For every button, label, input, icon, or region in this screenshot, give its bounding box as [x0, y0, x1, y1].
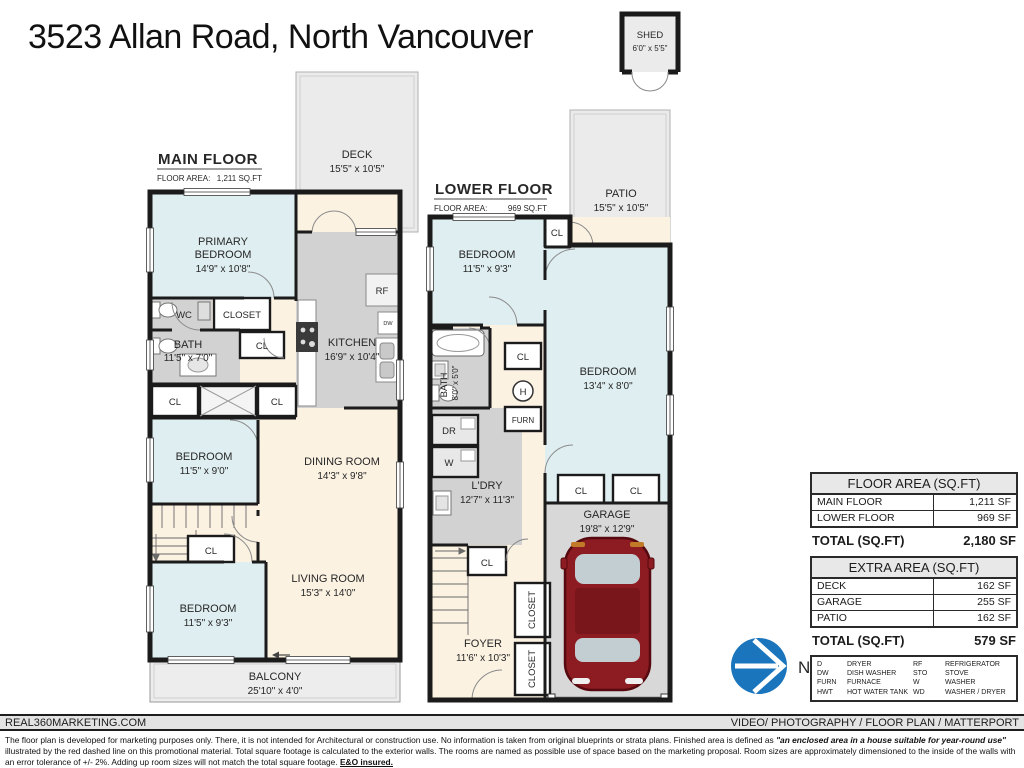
floor-area-table-header: FLOOR AREA (SQ.FT) [810, 472, 1018, 495]
living-label: LIVING ROOM [291, 573, 364, 585]
lower-bath-dims: 8'0" x 5'0" [451, 365, 460, 400]
total-value: 2,180 SF [963, 533, 1016, 548]
row-label: MAIN FLOOR [812, 495, 934, 510]
row-value: 969 SF [934, 511, 1016, 526]
legend-label: HOT WATER TANK [847, 688, 913, 697]
shed-label: SHED [637, 30, 664, 41]
cl-label-1: CL [256, 341, 268, 352]
patio-label: PATIO [605, 188, 637, 200]
row-label: LOWER FLOOR [812, 511, 934, 526]
floor-area-table: FLOOR AREA (SQ.FT) MAIN FLOOR 1,211 SF L… [810, 472, 1018, 548]
row-value: 162 SF [934, 579, 1016, 594]
main-floor-title: MAIN FLOOR [158, 151, 258, 168]
bedroom3-label: BEDROOM [180, 603, 237, 615]
north-label: N [798, 658, 810, 677]
washer-icon [432, 447, 478, 477]
dining-label: DINING ROOM [304, 456, 380, 468]
legend-abbr: DW [817, 669, 847, 678]
lower-floor-title: LOWER FLOOR [435, 181, 553, 198]
footer-bar: REAL360MARKETING.COM VIDEO/ PHOTOGRAPHY … [0, 714, 1024, 731]
bedroom2-label: BEDROOM [176, 451, 233, 463]
lower-bedroom2-label: BEDROOM [580, 366, 637, 378]
row-value: 1,211 SF [934, 495, 1016, 510]
kitchen-counter [296, 300, 318, 406]
row-value: 162 SF [934, 611, 1016, 626]
legend-label: REFRIGERATOR [945, 660, 1011, 669]
w-label: W [445, 458, 454, 469]
lower-floor-area-label: FLOOR AREA: [434, 204, 487, 213]
main-floor-area-value: 1,211 SQ.FT [217, 174, 262, 183]
extra-area-total: TOTAL (SQ.FT) 579 SF [810, 628, 1018, 648]
garage-dims: 19'8" x 12'9" [580, 524, 635, 535]
legend-abbr: STO [913, 669, 945, 678]
car-icon [561, 538, 654, 690]
lower-cl-label-1: CL [551, 228, 563, 239]
extra-area-table-header: EXTRA AREA (SQ.FT) [810, 556, 1018, 579]
kitchen-dims: 16'9" x 10'4" [325, 352, 380, 363]
dw-label: DW [383, 321, 393, 327]
patio-dims: 15'5" x 10'5" [594, 203, 649, 214]
main-shower [200, 386, 256, 416]
footer-left: REAL360MARKETING.COM [5, 716, 146, 729]
total-label: TOTAL (SQ.FT) [812, 633, 904, 648]
furn-label: FURN [512, 416, 534, 425]
legend-abbr: HWT [817, 688, 847, 697]
legend-abbr: D [817, 660, 847, 669]
deck-dims: 15'5" x 10'5" [330, 164, 385, 175]
rf-label: RF [376, 286, 389, 297]
foyer-dims: 11'6" x 10'3" [456, 653, 511, 664]
disclaimer-italic: "an enclosed area in a house suitable fo… [776, 735, 1006, 745]
shed-dims: 6'0" x 5'5" [633, 44, 668, 53]
dishwasher-icon: DW [378, 312, 398, 334]
ldry-dims: 12'7" x 11'3" [460, 495, 515, 506]
bath-dims: 11'5" x 7'0" [164, 353, 213, 364]
total-label: TOTAL (SQ.FT) [812, 533, 904, 548]
legend-label: WASHER [945, 678, 1011, 687]
wc-label: WC [176, 310, 192, 321]
legend-label: DRYER [847, 660, 913, 669]
legend-abbr: WD [913, 688, 945, 697]
table-row: MAIN FLOOR 1,211 SF [812, 495, 1016, 510]
ldry-label: L'DRY [471, 480, 503, 492]
disclaimer-bold: E&O insured. [340, 757, 393, 767]
primary-bedroom-label-1: PRIMARY [198, 236, 249, 248]
garage-label: GARAGE [583, 509, 630, 521]
row-label: PATIO [812, 611, 934, 626]
lower-bedroom2-dims: 13'4" x 8'0" [583, 381, 633, 392]
dining-dims: 14'3" x 9'8" [317, 471, 367, 482]
bath-label: BATH [174, 339, 203, 351]
primary-bedroom-dims: 14'9" x 10'8" [196, 264, 251, 275]
legend-label: WASHER / DRYER [945, 688, 1011, 697]
row-label: DECK [812, 579, 934, 594]
balcony-dims: 25'10" x 4'0" [248, 686, 303, 697]
primary-bedroom-label-2: BEDROOM [195, 249, 252, 261]
main-floor-plan: DECK 15'5" x 10'5" BALCONY 25'10" x 4'0" [140, 58, 430, 708]
bedroom3-dims: 11'5" x 9'3" [184, 618, 233, 629]
legend-abbr: FURN [817, 678, 847, 687]
page-title: 3523 Allan Road, North Vancouver [28, 18, 533, 57]
lower-cl-label-3: CL [481, 558, 493, 569]
table-row: DECK 162 SF [812, 579, 1016, 594]
floor-area-total: TOTAL (SQ.FT) 2,180 SF [810, 528, 1018, 548]
table-row: GARAGE 255 SF [812, 594, 1016, 610]
lower-bedroom1-dims: 11'5" x 9'3" [463, 264, 512, 275]
row-label: GARAGE [812, 595, 934, 610]
main-balcony: BALCONY 25'10" x 4'0" [150, 660, 400, 702]
lower-cl-label-2: CL [517, 352, 529, 363]
lower-bath-label: BATH [439, 373, 450, 398]
balcony-label: BALCONY [249, 671, 302, 683]
cl-label-2: CL [169, 397, 181, 408]
cl-label-3: CL [271, 397, 283, 408]
legend-box: D DRYER RF REFRIGERATOR DW DISH WASHER S… [810, 655, 1018, 702]
dr-label: DR [442, 426, 456, 437]
lower-floor-area-value: 969 SQ.FT [508, 204, 547, 213]
lower-cl-label-5: CL [630, 486, 642, 497]
legend-label: FURNACE [847, 678, 913, 687]
table-row: PATIO 162 SF [812, 610, 1016, 626]
lower-bedroom1-label: BEDROOM [459, 249, 516, 261]
total-value: 579 SF [974, 633, 1016, 648]
footer-right: VIDEO/ PHOTOGRAPHY / FLOOR PLAN / MATTER… [731, 716, 1019, 729]
legend-label: STOVE [945, 669, 1011, 678]
disclaimer-part-2: illustrated by the red dashed line on th… [5, 746, 1015, 767]
lower-cl-label-4: CL [575, 486, 587, 497]
cl-label-4: CL [205, 546, 217, 557]
legend-abbr: W [913, 678, 945, 687]
living-dims: 15'3" x 14'0" [301, 588, 356, 599]
closet-v2-label: CLOSET [527, 650, 538, 688]
row-value: 255 SF [934, 595, 1016, 610]
fridge-icon: RF [366, 274, 398, 306]
extra-area-table: EXTRA AREA (SQ.FT) DECK 162 SF GARAGE 25… [810, 556, 1018, 648]
north-compass-icon: N [726, 632, 816, 702]
disclaimer-part-1: The floor plan is developed for marketin… [5, 735, 776, 745]
kitchen-label: KITCHEN [328, 337, 376, 349]
bedroom2-dims: 11'5" x 9'0" [180, 466, 229, 477]
shed-plan: SHED 6'0" x 5'5" [608, 6, 692, 108]
stove-icon [296, 322, 318, 352]
table-row: LOWER FLOOR 969 SF [812, 510, 1016, 526]
foyer-label: FOYER [464, 638, 502, 650]
legend-label: DISH WASHER [847, 669, 913, 678]
main-floor-area-label: FLOOR AREA: [157, 174, 210, 183]
closet-label: CLOSET [223, 310, 261, 321]
closet-v1-label: CLOSET [527, 591, 538, 629]
lower-floor-plan: PATIO 15'5" x 10'5" [425, 95, 675, 710]
bathtub-icon [432, 330, 484, 356]
legend-abbr: RF [913, 660, 945, 669]
laundry-sink-icon [433, 491, 451, 515]
deck-label: DECK [342, 149, 373, 161]
disclaimer-text: The floor plan is developed for marketin… [5, 735, 1019, 768]
hwt-label: H [520, 387, 527, 398]
wc-sink-icon [198, 302, 210, 320]
